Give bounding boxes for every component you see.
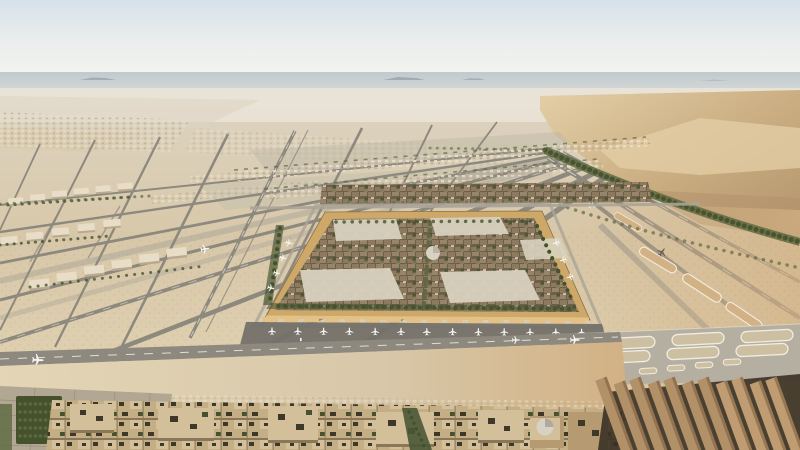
courtyard (170, 416, 178, 422)
gate-canopy (448, 318, 463, 323)
taxiway-loop (736, 343, 789, 357)
city-cream-block (300, 268, 404, 302)
taxiway-pad (723, 359, 741, 366)
courtyard (388, 420, 396, 426)
block-shadow (478, 440, 524, 443)
courtyard (96, 416, 103, 421)
service-vehicle (300, 338, 302, 341)
taxiway-loop (667, 346, 720, 360)
gate-canopy (263, 317, 278, 322)
taxiway-pad (667, 365, 685, 372)
gate-canopy (509, 318, 524, 323)
gate-canopy (366, 318, 381, 323)
city-cream-block (520, 238, 568, 260)
rendered-image (0, 0, 800, 450)
gate-canopy (407, 318, 422, 323)
gate-canopy (345, 317, 360, 322)
gate-canopy (284, 317, 299, 322)
foreground-green (0, 404, 12, 450)
gate-canopy (550, 318, 565, 323)
gate-canopy (325, 317, 340, 322)
courtyard (278, 414, 285, 420)
gate-canopy (571, 319, 586, 324)
gate-canopy (304, 317, 319, 322)
taxiway-loop (741, 329, 794, 343)
courtyard (80, 410, 86, 415)
courtyard (296, 424, 304, 430)
gate-canopy (530, 318, 545, 323)
courtyard-block (70, 404, 114, 432)
taxiway-loop (672, 332, 725, 346)
taxiway-pad (695, 362, 713, 369)
gate-canopy (386, 318, 401, 323)
block-shadow (70, 430, 114, 433)
aerial-render (0, 0, 800, 450)
courtyard (190, 424, 197, 429)
courtyard-block (478, 410, 524, 442)
block-shadow (158, 438, 214, 441)
block-shadow (268, 440, 318, 443)
city-cream-block (440, 270, 540, 303)
courtyard (488, 418, 495, 424)
courtyard (504, 426, 510, 431)
garden-courtyard (306, 410, 312, 415)
gate-canopy (468, 318, 483, 323)
gate-canopy (427, 318, 442, 323)
garden-courtyard (202, 412, 208, 417)
taxiway-pad (639, 368, 657, 375)
courtyard (592, 430, 599, 436)
gate-canopy (489, 318, 504, 323)
courtyard (578, 420, 585, 426)
